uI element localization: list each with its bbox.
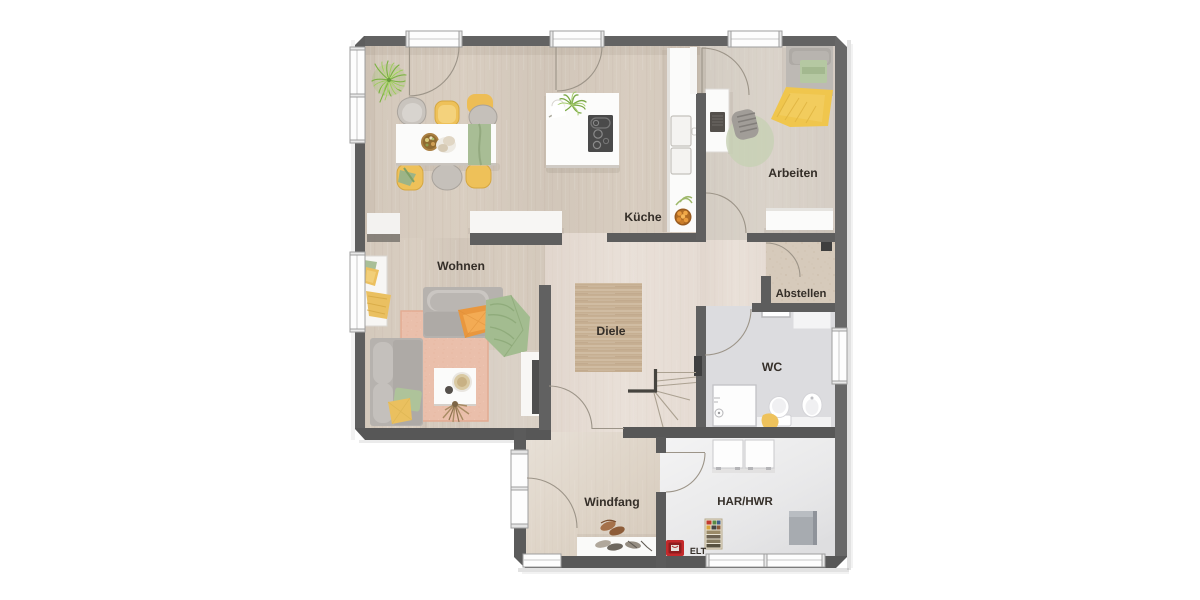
svg-text:Diele: Diele — [596, 324, 625, 338]
svg-text:ELT: ELT — [690, 546, 707, 556]
svg-text:HAR/HWR: HAR/HWR — [717, 496, 773, 508]
svg-text:Windfang: Windfang — [584, 495, 639, 509]
svg-text:Wohnen: Wohnen — [437, 259, 485, 273]
svg-text:Arbeiten: Arbeiten — [768, 166, 817, 180]
svg-text:WC: WC — [762, 360, 783, 374]
svg-text:Abstellen: Abstellen — [776, 288, 827, 300]
svg-text:Küche: Küche — [624, 210, 661, 224]
